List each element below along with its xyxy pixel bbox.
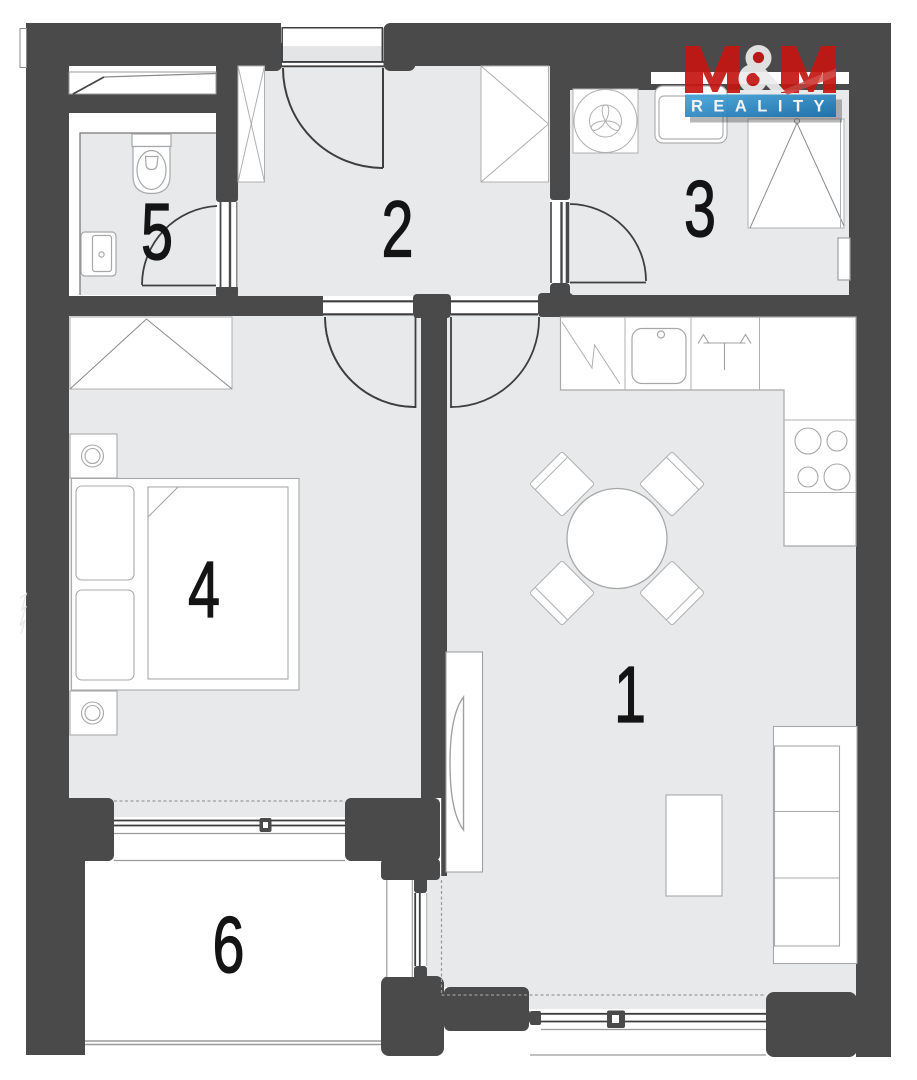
svg-text:3: 3 bbox=[684, 164, 716, 254]
svg-text:4: 4 bbox=[188, 545, 220, 635]
svg-text:2: 2 bbox=[381, 184, 413, 274]
svg-text:6: 6 bbox=[212, 900, 244, 990]
svg-text:5: 5 bbox=[141, 187, 173, 277]
svg-text:REALITY: REALITY bbox=[691, 98, 835, 116]
svg-text:1: 1 bbox=[614, 650, 646, 740]
